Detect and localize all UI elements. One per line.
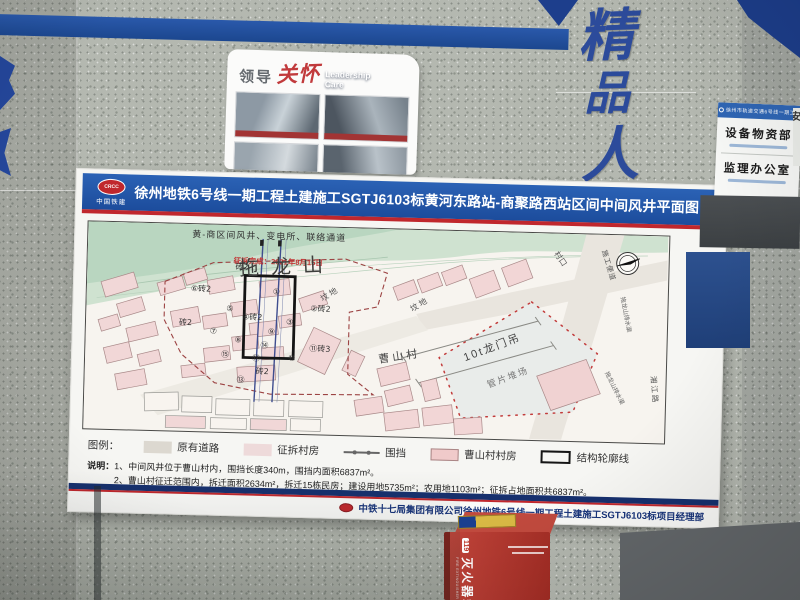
floor-shadow-area [620,522,800,600]
wall-decor-chevron [538,0,578,26]
crcc-org-name: 中国铁建 [96,195,126,206]
marker: ②砖2 [310,303,331,314]
blue-panel [686,252,750,348]
wall-seam [0,190,76,191]
map-frame: 黄-商区间风井、变电所、联络通道 征拆完成：2021年8月15日 拖龙山 坟地 … [82,220,670,444]
sign-header: 徐州市轨道交通6号线一期工程 [718,102,800,121]
metro-logo-icon [719,107,724,112]
fence-line-swatch [343,448,379,457]
marker: 砖2 [235,261,248,271]
fire-box-text-line [512,552,544,554]
crcc-logo: CRCC 中国铁建 [88,178,135,206]
photo-caption-bar [235,130,318,139]
marker: ⑧ [234,335,241,344]
leadership-care-title: 领导 关怀 Leadership Care [227,49,420,95]
photo [322,144,408,175]
grey-cabinet [700,195,800,249]
structure-outline-swatch [540,450,570,464]
wall-calligraphy-char: 品 [584,70,631,117]
wall-corner-shade [742,0,800,600]
wall-calligraphy-char: 人 [579,125,640,186]
photo [233,141,319,175]
wall-calligraphy-char: 精 [577,7,635,65]
demolish-house-swatch [243,443,271,456]
legend-item: 原有道路 [143,439,219,456]
fire-extinguisher-box: 119 灭火器箱 FIRE EXTINGUISHER KIT [442,510,567,600]
legend-item: 围挡 [343,444,406,461]
village-house-swatch [430,448,458,461]
title-zh-leader: 领导 [239,65,274,87]
site-plan-map: 黄-商区间风井、变电所、联络通道 征拆完成：2021年8月15日 拖龙山 坟地 … [83,221,668,442]
title-en: Leadership Care [325,70,371,90]
title-zh-care: 关怀 [276,57,321,89]
road-swatch [143,440,171,453]
photo [323,94,409,143]
floor-gradient [0,470,460,600]
office-room-sign: 徐州市轨道交通6号线一期工程 设备物资部 监理办公室 [714,102,800,206]
marker: ⑨ [268,327,275,336]
fire-hotline-chip: 119 [462,538,469,553]
crcc-emblem-icon: CRCC [97,178,125,195]
marker: ⑭ [260,341,268,350]
room-name-en-line [729,144,788,150]
room-name-supervision: 监理办公室 [715,159,800,179]
poster-title-banner: CRCC 中国铁建 徐州地铁6号线一期工程土建施工SGTJ6103标黄河东路站-… [82,173,721,230]
legend-title: 图例： [88,437,120,453]
poster-title: 徐州地铁6号线一期工程土建施工SGTJ6103标黄河东路站-商聚路西站区间中间风… [134,183,699,218]
partial-sign-edge: 安 [793,108,800,166]
marker: ③ [286,318,293,327]
fire-box-text-line [508,546,548,548]
photo [234,91,320,140]
wall-blue-stripe [0,14,569,50]
legend-item: 结构轮廓线 [540,449,629,466]
marker: ⑥砖2 [191,283,212,294]
sign-divider [721,152,795,156]
leadership-care-board: 领导 关怀 Leadership Care [224,49,420,175]
marker: ⑮ [221,350,229,359]
legend-item: 曹山村村房 [430,446,517,463]
marker: ① [273,287,280,296]
marker: ⑩ [288,354,295,363]
room-name-en-line [727,179,786,185]
marker: ⑤ [226,304,233,313]
marker: ⑪砖3 [309,343,330,354]
photo-scene: 精 品 人 领导 关怀 Leadership Care CRCC 中国铁建 徐州… [0,0,800,600]
legend-item: 征拆村房 [243,441,319,458]
fire-box-top-label [458,514,516,529]
marker: ④砖2 [242,311,263,322]
photo-caption-bar [324,133,407,142]
marker: ⑦ [210,327,217,336]
leadership-photo-grid [224,89,418,175]
marker: ⑰ [252,354,260,363]
marker: 砖2 [179,317,192,327]
fire-box-name: 灭火器箱 [459,557,476,600]
room-name-equipment: 设备物资部 [717,124,800,144]
marker: ⑬ [236,375,244,384]
marker: 砖2 [256,366,269,376]
mountain-label: 拖龙山 [238,253,335,280]
